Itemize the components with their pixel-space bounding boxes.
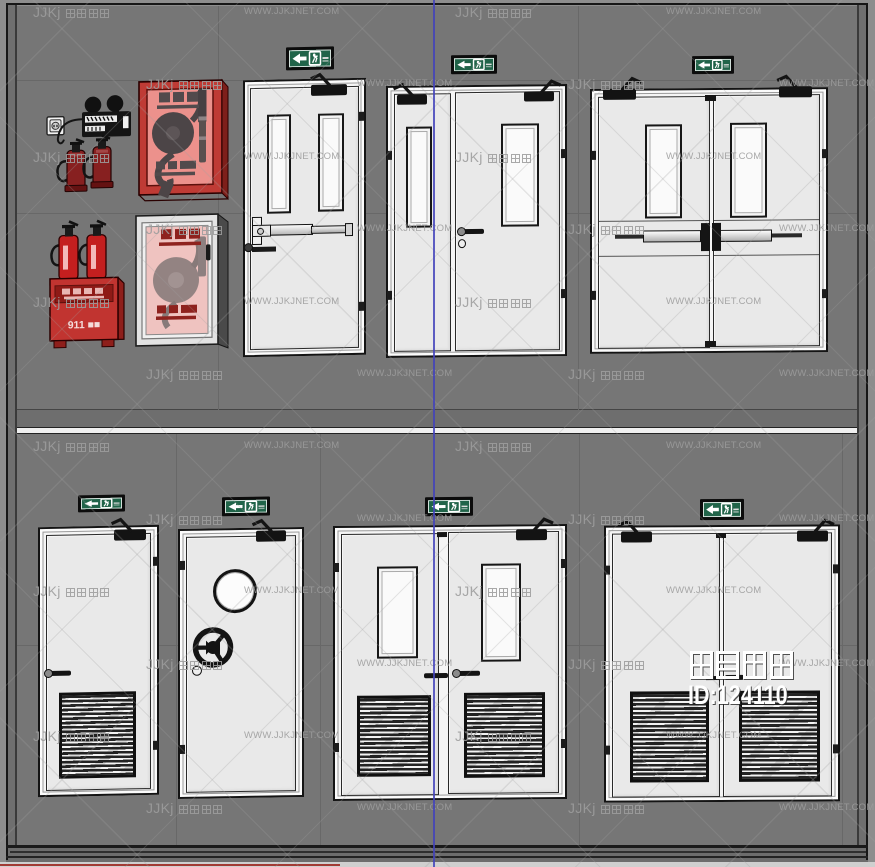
svg-text:911 ■■: 911 ■■ <box>68 319 101 332</box>
